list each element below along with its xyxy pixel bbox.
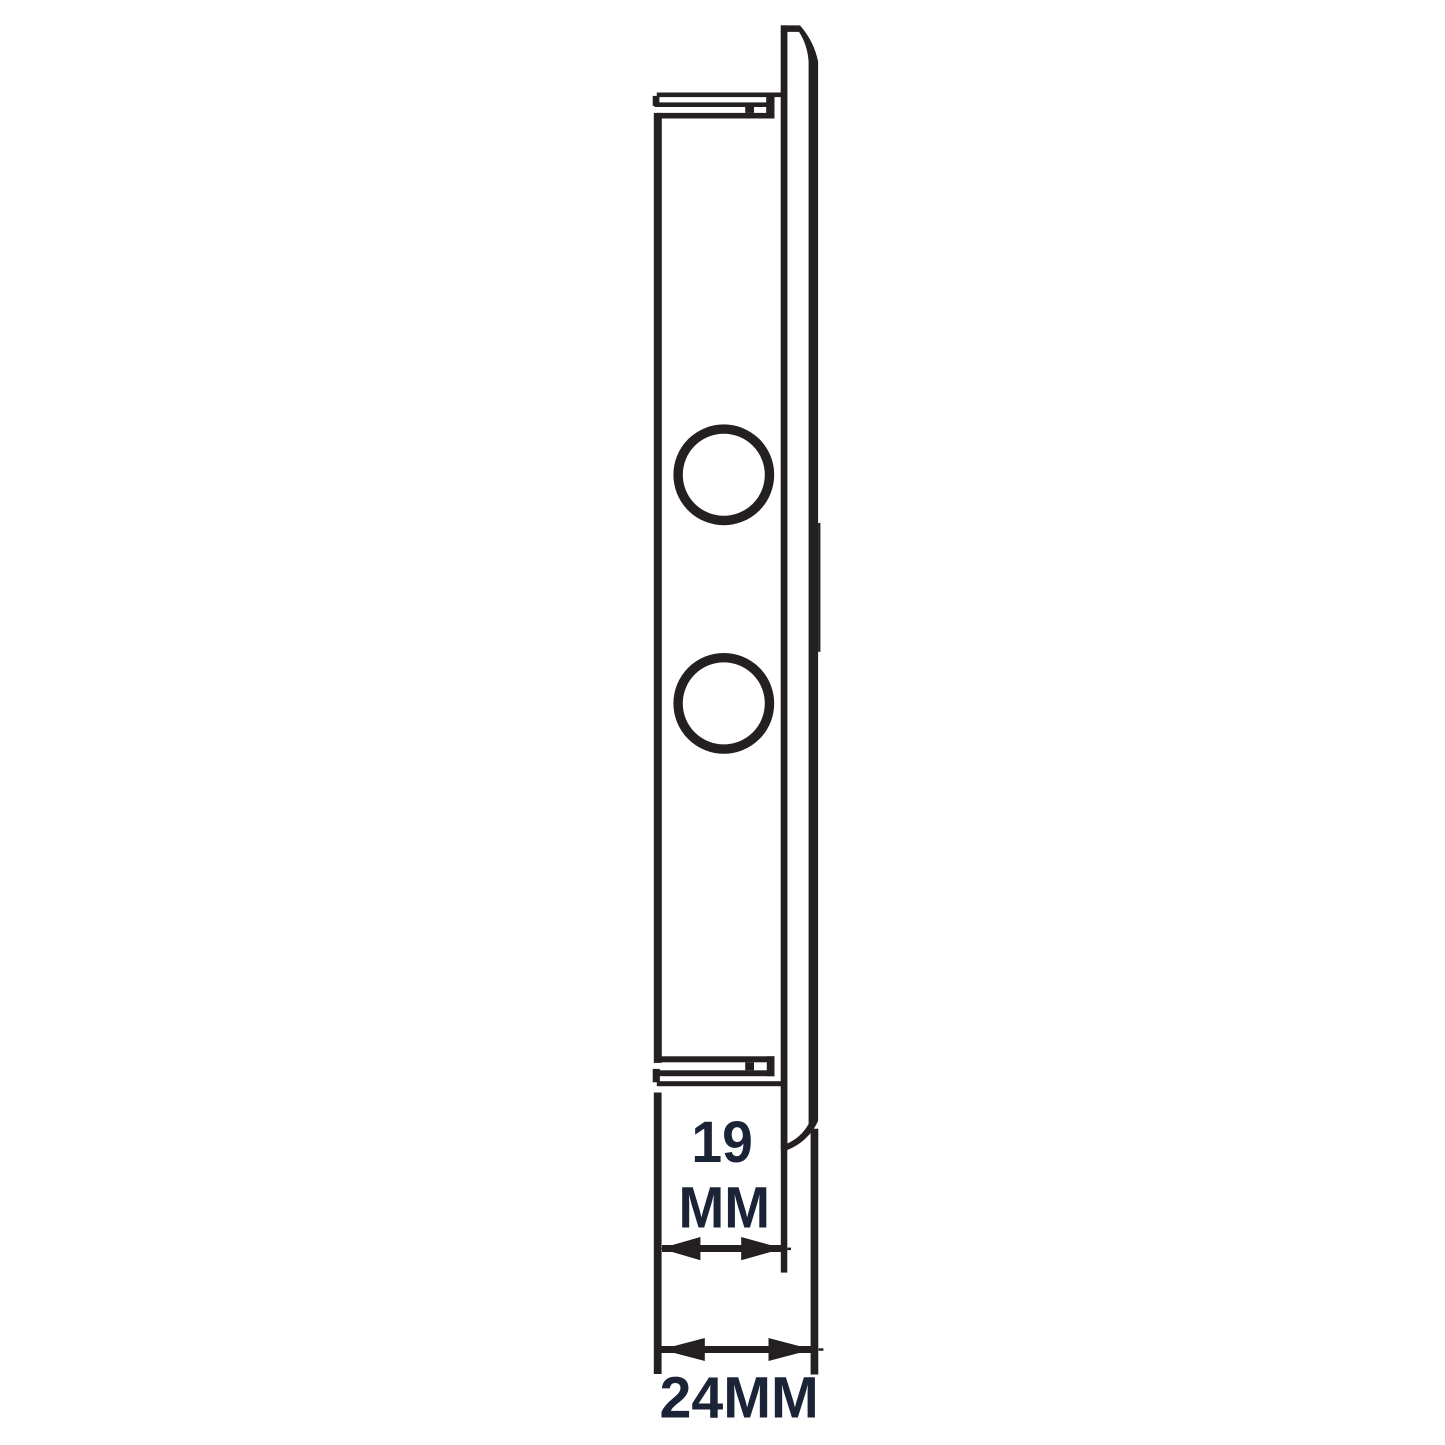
svg-text:19: 19 — [691, 1110, 753, 1175]
svg-text:24MM: 24MM — [660, 1365, 819, 1430]
svg-text:MM: MM — [679, 1175, 771, 1240]
